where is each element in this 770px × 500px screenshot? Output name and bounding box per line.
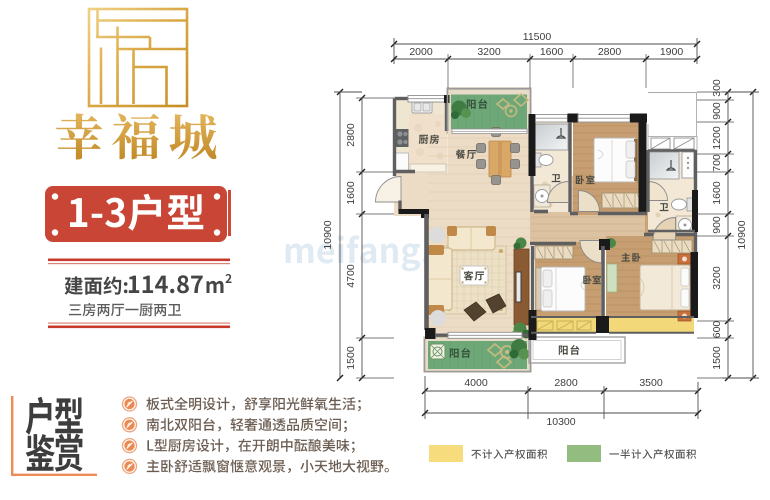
svg-text:1900: 1900 — [660, 46, 684, 58]
svg-text:300: 300 — [711, 79, 723, 97]
svg-text:4700: 4700 — [345, 264, 357, 288]
svg-text:4000: 4000 — [464, 377, 488, 389]
svg-text:1200: 1200 — [711, 126, 723, 150]
svg-text:11500: 11500 — [523, 31, 552, 43]
svg-text:1600: 1600 — [711, 181, 723, 205]
svg-text:2800: 2800 — [598, 46, 622, 58]
svg-text:1500: 1500 — [345, 346, 357, 370]
svg-text:3500: 3500 — [639, 377, 663, 389]
svg-text:2800: 2800 — [345, 123, 357, 147]
svg-text:2800: 2800 — [554, 377, 578, 389]
svg-text:700: 700 — [711, 154, 723, 172]
svg-text:3200: 3200 — [711, 266, 723, 290]
svg-text:1600: 1600 — [540, 46, 564, 58]
svg-text:600: 600 — [711, 321, 723, 339]
svg-text:10300: 10300 — [546, 416, 575, 428]
svg-text:10900: 10900 — [322, 220, 334, 249]
svg-text:900: 900 — [711, 216, 723, 234]
svg-text:1600: 1600 — [345, 181, 357, 205]
svg-text:2000: 2000 — [409, 46, 433, 58]
svg-text:900: 900 — [711, 102, 723, 120]
svg-text:3200: 3200 — [477, 46, 501, 58]
svg-text:10900: 10900 — [736, 220, 748, 249]
svg-text:1500: 1500 — [711, 346, 723, 370]
